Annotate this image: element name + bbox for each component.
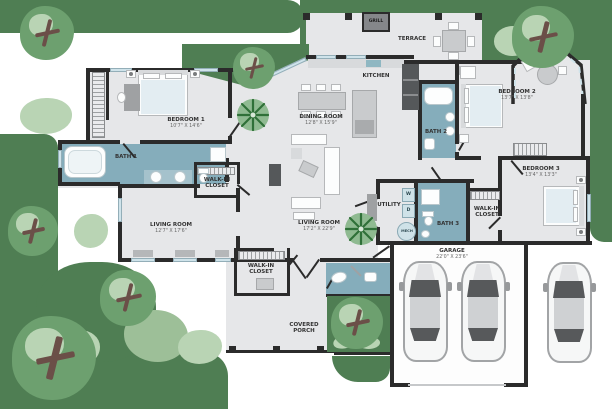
tree <box>512 6 574 68</box>
dining-table <box>298 92 346 110</box>
wall <box>455 64 459 144</box>
bedroom1-dims: 10'7" X 14'6" <box>170 124 202 129</box>
bed-sheet <box>546 189 576 223</box>
wall <box>194 195 240 198</box>
car <box>403 261 448 362</box>
closet-rod <box>470 191 500 200</box>
living2-dims: 17'2" X 22'9" <box>303 227 335 232</box>
living2-label: LIVING ROOM <box>298 220 340 226</box>
wall <box>376 179 474 183</box>
bath2-label: BATH 2 <box>425 129 447 135</box>
lamp <box>579 230 583 234</box>
wall <box>390 241 394 387</box>
bath3-label: BATH 3 <box>437 221 459 227</box>
dryer-label: D <box>405 208 412 213</box>
terrace-chair <box>467 36 475 47</box>
terrace-post <box>475 13 482 20</box>
porch-label: COVERED PORCH <box>283 322 325 335</box>
bedroom2-label: BEDROOM 2 <box>498 89 535 95</box>
sink <box>421 230 430 238</box>
wall <box>234 248 237 296</box>
tree <box>233 47 275 89</box>
bed-headboard <box>579 186 584 226</box>
shrub <box>20 98 72 134</box>
bed-sheet <box>470 86 501 126</box>
bath1-label: BATH 1 <box>115 154 137 160</box>
tree <box>20 6 74 60</box>
kitchen-sink <box>366 60 381 67</box>
wall <box>459 156 481 160</box>
washer-label: W <box>405 192 412 197</box>
window-sill <box>215 250 229 257</box>
sink <box>174 171 186 183</box>
terrace-post <box>303 13 310 20</box>
garage-door <box>408 384 506 386</box>
garage-label: GARAGE <box>439 248 465 254</box>
terrace-post <box>435 13 442 20</box>
sofa <box>291 134 327 145</box>
kitchen-counter <box>308 59 404 68</box>
window <box>173 258 197 262</box>
pillow <box>464 88 469 104</box>
window-sill <box>133 250 153 257</box>
fridge-range <box>402 64 419 110</box>
wall <box>118 184 122 262</box>
closet-rod <box>238 251 285 260</box>
living1-label: LIVING ROOM <box>150 222 192 228</box>
window <box>131 258 155 262</box>
closet3-label: WALK-IN CLOSET <box>245 263 277 276</box>
tree <box>8 206 58 256</box>
tv <box>269 164 281 186</box>
window <box>118 198 122 222</box>
side-table <box>291 148 302 159</box>
dining-dims: 12'8" X 15'9" <box>305 121 337 126</box>
ottoman <box>293 212 315 220</box>
linen-cabinet <box>460 66 476 79</box>
bathtub <box>424 87 453 105</box>
wall <box>140 140 232 144</box>
palm-plant <box>234 96 272 134</box>
closet1-label: WALK-IN CLOSET <box>200 177 234 190</box>
dining-chair <box>331 84 341 91</box>
kitchen-label: KITCHEN <box>362 73 389 79</box>
bed-sheet <box>141 80 185 114</box>
toilet <box>364 272 377 282</box>
wall <box>418 80 458 84</box>
porch-post <box>317 346 324 353</box>
porch-post <box>273 346 280 353</box>
shower <box>421 189 440 205</box>
garage-dims: 22'0" X 23'6" <box>436 255 468 260</box>
wall <box>236 188 240 212</box>
palm-plant <box>342 210 380 248</box>
tree <box>331 297 383 349</box>
window <box>587 194 591 222</box>
lamp <box>579 178 583 182</box>
closet2-label: WALK-IN CLOSET <box>471 206 503 219</box>
pillow <box>143 73 160 79</box>
dining-chair <box>301 84 311 91</box>
bathtub-basin <box>68 150 102 174</box>
wall <box>376 241 592 245</box>
tree <box>12 316 96 400</box>
wall <box>58 140 120 144</box>
bedroom1-label: BEDROOM 1 <box>167 117 204 123</box>
wall <box>287 248 290 296</box>
pillow <box>165 73 182 79</box>
pillow <box>464 107 469 123</box>
terrace-label: TERRACE <box>398 36 426 42</box>
porch-garden-south <box>332 356 390 382</box>
dresser <box>256 278 274 290</box>
bedroom2-dims: 13'7" X 13'8" <box>501 96 533 101</box>
cooktop <box>355 120 374 134</box>
terrace-table <box>442 30 466 52</box>
wall <box>228 68 232 118</box>
stairs <box>513 143 547 156</box>
sink <box>445 112 455 122</box>
wall <box>234 293 290 296</box>
wall <box>106 68 109 120</box>
wall <box>390 383 410 387</box>
wall <box>58 182 120 186</box>
tree <box>100 270 156 326</box>
car <box>547 262 592 363</box>
lamp <box>193 72 197 76</box>
porch-post <box>229 346 236 353</box>
grill-label: GRILL <box>369 19 384 24</box>
utility-label: UTILITY <box>377 202 401 208</box>
wall <box>237 162 240 184</box>
dining-label: DINING ROOM <box>299 114 342 120</box>
pillow <box>573 207 578 222</box>
wall <box>194 162 240 165</box>
lamp <box>129 72 133 76</box>
wall <box>86 68 90 144</box>
terrace-post <box>345 13 352 20</box>
floor-plan-canvas: BEDROOM 1 10'7" X 14'6" BATH 1 WALK-IN C… <box>0 0 612 409</box>
terrace-chair <box>448 52 459 60</box>
wall <box>581 94 585 160</box>
wall <box>524 241 528 387</box>
living1-dims: 12'7" X 17'6" <box>155 229 187 234</box>
shower <box>210 147 226 162</box>
appliance-divider <box>403 94 418 96</box>
sofa <box>291 197 321 209</box>
wall <box>118 184 200 188</box>
terrace-chair <box>448 22 459 30</box>
sink <box>150 171 162 183</box>
bedroom3-label: BEDROOM 3 <box>522 166 559 172</box>
toilet <box>424 138 435 150</box>
mech-label: MECH <box>398 229 416 233</box>
toilet-bowl <box>424 216 433 226</box>
nightstand <box>459 134 469 143</box>
shrub <box>74 214 108 248</box>
chaise <box>324 147 340 195</box>
appliance-divider <box>403 79 418 81</box>
pillow <box>573 190 578 205</box>
wall <box>504 383 528 387</box>
window-sill <box>175 250 195 257</box>
desk-chair <box>117 92 126 103</box>
desk <box>124 84 140 111</box>
window <box>58 150 62 168</box>
closet-rod <box>92 72 105 138</box>
bedroom3-dims: 13'4" X 13'3" <box>525 173 557 178</box>
terrace-chair <box>433 36 441 47</box>
dining-chair <box>316 84 326 91</box>
wall <box>320 258 392 262</box>
car <box>461 261 506 362</box>
window <box>215 258 231 262</box>
